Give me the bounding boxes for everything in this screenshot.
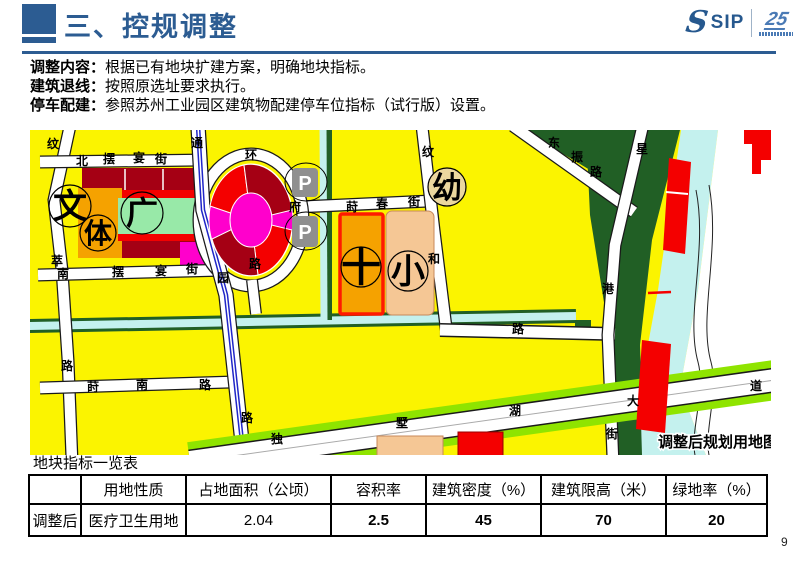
street-label: 园 (217, 271, 229, 285)
street-label: 北 (76, 153, 88, 168)
street-label: 莳 (346, 199, 358, 214)
anniversary-25: 25 (763, 11, 789, 30)
bridge-mark (648, 292, 671, 293)
map-caption: 调整后规划用地图 (658, 433, 771, 451)
plaza-marker: 广 (126, 195, 158, 231)
header-density: 建筑密度（%） (426, 475, 541, 504)
street-label: 街 (605, 426, 618, 441)
street-label: 港 (602, 281, 615, 296)
street-label: 摆 (103, 151, 115, 166)
page-number: 9 (781, 535, 788, 549)
street-label: 府 (289, 199, 301, 214)
red-block-south (458, 432, 503, 455)
header-blank (29, 475, 81, 504)
street-label: 星 (636, 142, 648, 156)
header-green-ratio: 绿地率（%） (666, 475, 767, 504)
street-label: 路 (241, 410, 254, 425)
cell-height-limit: 70 (541, 504, 666, 536)
intro-line-3: 停车配建：参照苏州工业园区建筑物配建停车位指标（试行版）设置。 (30, 96, 495, 115)
intro-block: 调整内容：根据已有地块扩建方案，明确地块指标。 建筑退线：按照原选址要求执行。 … (30, 58, 495, 115)
sip-logo-s-icon: S (684, 9, 710, 37)
title-accent-square (22, 4, 56, 34)
sip-logo: S SIP 25 (686, 9, 793, 37)
intro-text-3: 参照苏州工业园区建筑物配建停车位指标（试行版）设置。 (105, 97, 495, 114)
street-label: 街 (154, 151, 167, 166)
header-land-use: 用地性质 (81, 475, 186, 504)
street-label: 萃 (51, 253, 63, 268)
page-title: 三、控规调整 (64, 5, 238, 44)
street-label: 宴 (133, 150, 145, 165)
table-title: 地块指标一览表 (33, 452, 138, 473)
cell-far: 2.5 (331, 504, 426, 536)
header-height-limit: 建筑限高（米） (541, 475, 666, 504)
street-label: 墅 (396, 416, 408, 430)
street-label: 宴 (155, 263, 167, 278)
street-label: 纹 (422, 144, 435, 159)
street-label: 和 (427, 251, 440, 266)
street-label: 路 (249, 256, 262, 271)
table-header-row: 用地性质 占地面积（公顷） 容积率 建筑密度（%） 建筑限高（米） 绿地率（%） (29, 475, 767, 504)
parking-p-north: P (298, 173, 311, 195)
slide: { "header": { "title": "三、控规调整", "logo_s… (0, 0, 800, 565)
logo-fine-print (759, 32, 793, 36)
street-label: 纹 (47, 136, 60, 151)
street-label: 大 (627, 393, 639, 408)
street-label: 环 (245, 148, 257, 162)
school-marker: 小 (391, 253, 425, 291)
street-label: 路 (61, 358, 74, 373)
street-label: 摆 (112, 264, 124, 279)
street-label: 路 (199, 377, 212, 392)
anniversary-mark: 25 (759, 11, 793, 36)
street-label: 莳 (87, 379, 99, 394)
street-label: 路 (512, 321, 525, 336)
title-accent-bar (22, 37, 56, 43)
plot-indicator-table: 用地性质 占地面积（公顷） 容积率 建筑密度（%） 建筑限高（米） 绿地率（%）… (28, 474, 768, 537)
cell-green-ratio: 20 (666, 504, 767, 536)
kindergarten-marker: 幼 (432, 172, 462, 205)
header-rule (22, 51, 776, 54)
street-label: 南 (57, 266, 69, 281)
street-label: 湖 (509, 403, 521, 418)
planning-map: 文 体 广 幼 小 十 P P 纹 北 摆 宴 街 通 萃 南 摆 宴 街 园 … (30, 130, 771, 455)
street-label: 路 (590, 164, 603, 179)
intro-text-1: 根据已有地块扩建方案，明确地块指标。 (105, 59, 375, 76)
parking-p-south: P (298, 222, 311, 244)
street-label: 春 (375, 196, 389, 211)
hospital-cross-marker: 十 (341, 246, 381, 290)
riverside-building-south (636, 340, 671, 433)
header-area: 占地面积（公顷） (186, 475, 331, 504)
intro-label-1: 调整内容： (30, 59, 105, 76)
street-label: 南 (136, 377, 148, 392)
cell-land-use: 医疗卫生用地 (81, 504, 186, 536)
intro-line-1: 调整内容：根据已有地块扩建方案，明确地块指标。 (30, 58, 495, 77)
intro-label-3: 停车配建： (30, 97, 105, 114)
row-label: 调整后 (29, 504, 81, 536)
intro-line-2: 建筑退线：按照原选址要求执行。 (30, 77, 495, 96)
intro-label-2: 建筑退线： (30, 78, 105, 95)
sports-marker: 体 (84, 218, 113, 249)
intro-text-2: 按照原选址要求执行。 (105, 78, 255, 95)
header-far: 容积率 (331, 475, 426, 504)
street-label: 道 (750, 378, 762, 393)
peach-block-south (377, 436, 443, 455)
street-label: 东 (548, 135, 560, 150)
logo-divider (751, 9, 752, 37)
cell-density: 45 (426, 504, 541, 536)
street-label: 独 (270, 431, 283, 446)
street-label: 街 (185, 261, 198, 276)
street-label: 通 (191, 135, 203, 150)
street-label: 街 (407, 194, 420, 209)
culture-marker: 文 (53, 188, 87, 226)
cell-area: 2.04 (186, 504, 331, 536)
sip-logo-text: SIP (711, 12, 745, 34)
street-label: 振 (571, 149, 583, 164)
table-data-row: 调整后 医疗卫生用地 2.04 2.5 45 70 20 (29, 504, 767, 536)
